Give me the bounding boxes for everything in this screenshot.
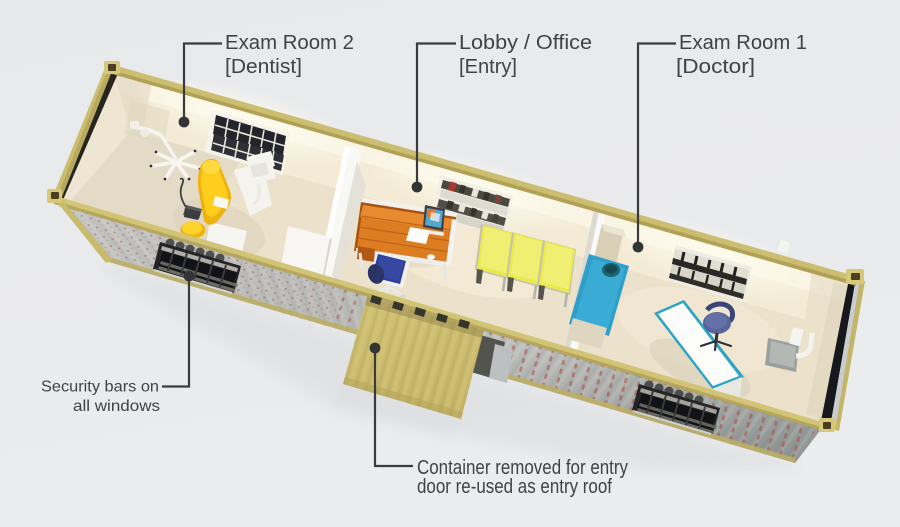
svg-text:door re-used as entry roof: door re-used as entry roof (417, 476, 612, 498)
svg-text:[Entry]: [Entry] (459, 56, 517, 78)
svg-text:[Dentist]: [Dentist] (225, 56, 302, 78)
svg-text:all windows: all windows (73, 398, 160, 415)
svg-text:Exam Room 2: Exam Room 2 (225, 32, 354, 54)
svg-text:[Doctor]: [Doctor] (676, 56, 755, 78)
svg-text:Security bars on: Security bars on (41, 379, 159, 396)
svg-text:Exam Room 1: Exam Room 1 (679, 32, 807, 54)
svg-text:Lobby / Office: Lobby / Office (459, 32, 592, 54)
